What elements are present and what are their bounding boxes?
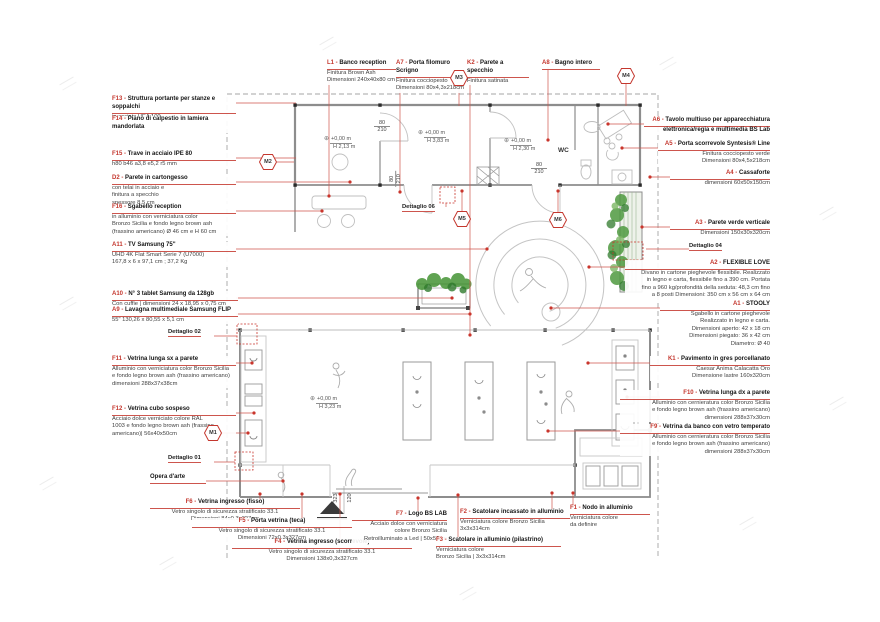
label-l1: L1 - Banco reception Finitura Brown AshD…: [327, 60, 397, 85]
reception-furniture: [312, 154, 366, 228]
entry-dim-323: 323: [333, 488, 339, 508]
label-k1: K1 - Pavimento in gres porcellanato Caes…: [650, 356, 770, 381]
door-dim-1: 80 210: [374, 120, 390, 134]
label-opera-darte: Opera d'arte: [150, 474, 206, 484]
label-dettaglio-01: Dettaglio 01: [168, 455, 201, 463]
marker-m6: M6: [549, 212, 567, 228]
entry-dim-120: 120: [347, 488, 353, 508]
marker-m3: M3: [450, 70, 468, 86]
label-a5: A5 - Porta scorrevole Syntesis® Line Fin…: [658, 141, 770, 166]
leader-dots: [246, 122, 651, 499]
level-symbol-icon: ⊕: [310, 396, 315, 402]
level-marker-showroom: ⊕+0,00 m H 3,23 m: [310, 396, 341, 411]
label-dettaglio-04: Dettaglio 04: [689, 243, 722, 251]
level-symbol-icon: ⊕: [504, 138, 509, 144]
detail-boxes: [235, 187, 643, 470]
marker-m1: M1: [204, 425, 222, 441]
level-marker-hall: ⊕+0,00 m H 3,83 m: [418, 130, 449, 145]
shaft-hatch: [477, 167, 499, 185]
cardboard-sofa: [476, 221, 604, 345]
label-a1: A1 - STOOLY Sgabello in cartone pieghevo…: [660, 301, 770, 348]
display-tables: [403, 362, 555, 440]
label-dettaglio-02: Dettaglio 02: [168, 329, 201, 337]
label-f9: F9 - Vetrina da banco con vetro temperat…: [620, 424, 770, 456]
left-display-cases: [241, 336, 266, 462]
label-f3: F3 - Scatolare in alluminio (pilastrino)…: [436, 537, 561, 562]
label-f10: F10 - Vetrina lunga dx a parete Allumini…: [620, 390, 770, 422]
label-f15: F15 - Trave in acciaio IPE 80 h80 b46 a3…: [112, 151, 236, 168]
label-d2: D2 - Parete in cartongesso con telai in …: [112, 175, 236, 207]
label-a3: A3 - Parete verde verticale Dimensioni 1…: [670, 220, 770, 237]
label-a10: A10 - N° 3 tablet Samsung da 128gb Con c…: [112, 291, 238, 308]
label-f7: F7 - Logo BS LAB Acciaio dolce con verni…: [352, 511, 447, 543]
label-f14: F14 - Piano di calpestio in lamiera mand…: [112, 116, 238, 133]
marker-m2: M2: [259, 154, 277, 170]
room-label-wc: WC: [558, 147, 569, 154]
level-symbol-icon: ⊕: [418, 130, 423, 136]
level-marker-bath: ⊕+0,00 m H 2,30 m: [504, 138, 535, 153]
door-dim-2: 80 210: [389, 171, 403, 187]
site-boundary: [227, 94, 658, 558]
label-dettaglio-06: Dettaglio 06: [402, 204, 435, 212]
label-f2: F2 - Scatolare incassato in alluminio Ve…: [460, 509, 585, 534]
marker-m4: M4: [617, 68, 635, 84]
planter: [416, 273, 472, 310]
level-symbol-icon: ⊕: [324, 136, 329, 142]
label-a2: A2 - FLEXIBLE LOVE Divano in cartone pie…: [625, 260, 770, 300]
label-k2: K2 - Parete a specchio Finitura satinata: [467, 60, 529, 85]
door-dim-3: 80 210: [531, 162, 547, 176]
label-f16: F16 - Sgabello reception in alluminio co…: [112, 204, 236, 236]
label-f1: F1 - Nodo in alluminio Verniciatura colo…: [570, 505, 650, 530]
marker-m5: M5: [453, 211, 471, 227]
label-a6: A6 - Tavolo multiuso per apparecchiatura…: [644, 117, 770, 135]
level-marker-reception: ⊕+0,00 m H 2,13 m: [324, 136, 355, 151]
architectural-plan-page: { "colors": {"annotation_red": "#c4372e"…: [0, 0, 880, 622]
label-a8: A8 - Bagno intero: [542, 60, 600, 70]
label-a11: A11 - TV Samsung 75" UHD 4K Flat Smart S…: [112, 242, 236, 267]
label-a9: A9 - Lavagna multimediale Samsung FLIP 5…: [112, 307, 238, 324]
label-a4: A4 - Cassaforte dimensioni 60x50x150cm: [670, 170, 770, 187]
label-f11: F11 - Vetrina lunga sx a parete Allumini…: [112, 356, 236, 388]
entrance-arrow: [317, 501, 347, 520]
